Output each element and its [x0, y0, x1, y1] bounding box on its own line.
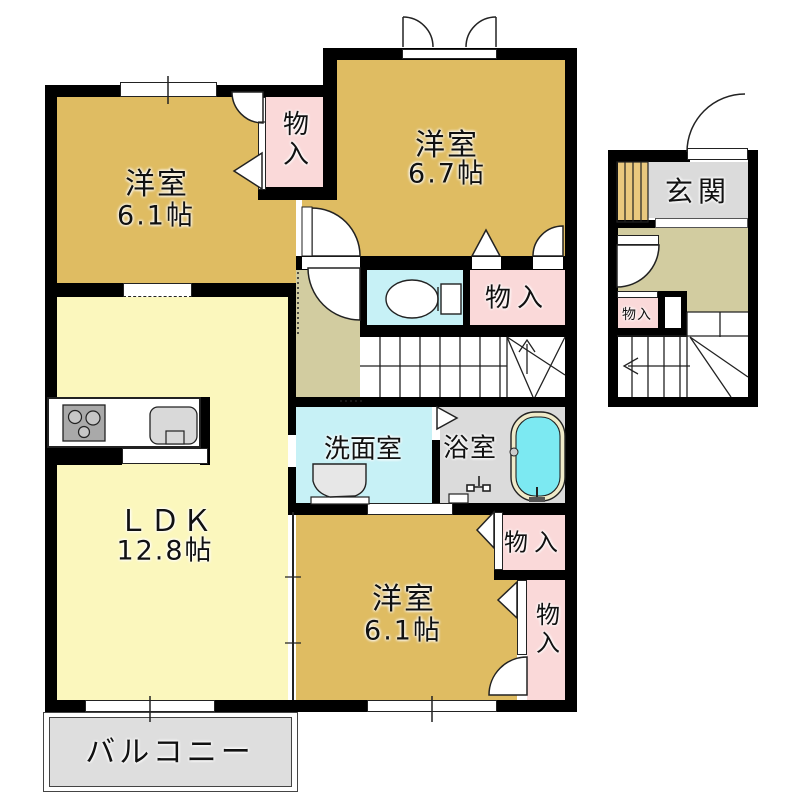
closet-c-door-strip [494, 512, 503, 570]
wall-entry-top [608, 150, 690, 162]
room-label-washroom: 洗面室 [324, 429, 402, 466]
room-label-bathroom: 浴室 [443, 428, 497, 465]
hall-door-leaf-1f [617, 235, 659, 245]
wall-closet-a-bottom [258, 187, 337, 200]
closet-label-b: 物入 [485, 278, 549, 315]
bedroom-top-right-floor [302, 200, 337, 256]
door-gap-closet-b-arc [533, 257, 563, 269]
wall-right [565, 48, 577, 712]
room-size-bedroom-top-right: 6.7帖 [408, 152, 486, 191]
wall-entry-right [748, 150, 758, 407]
shoe-cabinet [617, 162, 648, 222]
wall-entry-bottom [608, 397, 758, 407]
closet-a-door-strip [258, 97, 266, 190]
door-gap-wet-bottom [367, 503, 453, 515]
floor-plan: 洋室 6.1帖 洋室 6.7帖 ＬＤＫ 12.8帖 洗面室 浴室 洋室 6.1帖… [0, 0, 800, 800]
room-size-bedroom-top-left: 6.1帖 [117, 194, 195, 233]
wall-left [45, 85, 57, 712]
hall-floor [296, 270, 360, 400]
wall-stairs-bottom [288, 397, 577, 407]
door-gap-vestibule [302, 257, 360, 269]
sliding-door-r1-ldk [123, 283, 192, 297]
stairs-1f-floor [617, 337, 748, 397]
window-top-left [120, 82, 217, 97]
entrance-door-arc-icon [687, 94, 745, 152]
closet-d-door-strip [517, 580, 527, 655]
closet-label-e: 物入 [622, 304, 652, 324]
wall-stairs-top [360, 325, 577, 337]
closet-e-niche [665, 297, 681, 328]
room-size-ldk: 12.8帖 [116, 529, 213, 568]
window-ldk-bottom [85, 700, 215, 712]
stairs-floor [360, 337, 565, 397]
closet-label-c: 物入 [504, 523, 564, 558]
double-door-icon [403, 17, 496, 47]
double-door-opening [402, 49, 497, 59]
closet-label-d: 物入 [529, 602, 564, 658]
room-label-entrance: 玄関 [665, 170, 731, 210]
room-label-balcony: バルコニー [85, 727, 254, 771]
kitchen-counter-ledge [122, 448, 208, 464]
wall-washroom-bathroom [432, 440, 440, 503]
window-bedroom-bottom [367, 700, 497, 712]
wall-closet-e-bottom [617, 328, 658, 337]
wall-toilet-closet-divider [463, 270, 470, 325]
entrance-step [655, 218, 748, 228]
wall-closet-c-bottom [494, 570, 577, 580]
closet-label-a: 物入 [276, 110, 313, 170]
entrance-door-leaf [687, 148, 748, 160]
wall-entry-step [617, 220, 655, 228]
room-size-bedroom-bottom: 6.1帖 [364, 609, 442, 648]
wall-kitchen-low [45, 447, 122, 465]
wall-r2-left [323, 48, 337, 200]
wall-ldk-hall [288, 283, 296, 397]
door-gap-closet-b-fold [472, 257, 501, 269]
wall-entry-left [608, 150, 618, 407]
toilet-floor [367, 270, 463, 325]
closet-e-door-strip [617, 291, 658, 298]
